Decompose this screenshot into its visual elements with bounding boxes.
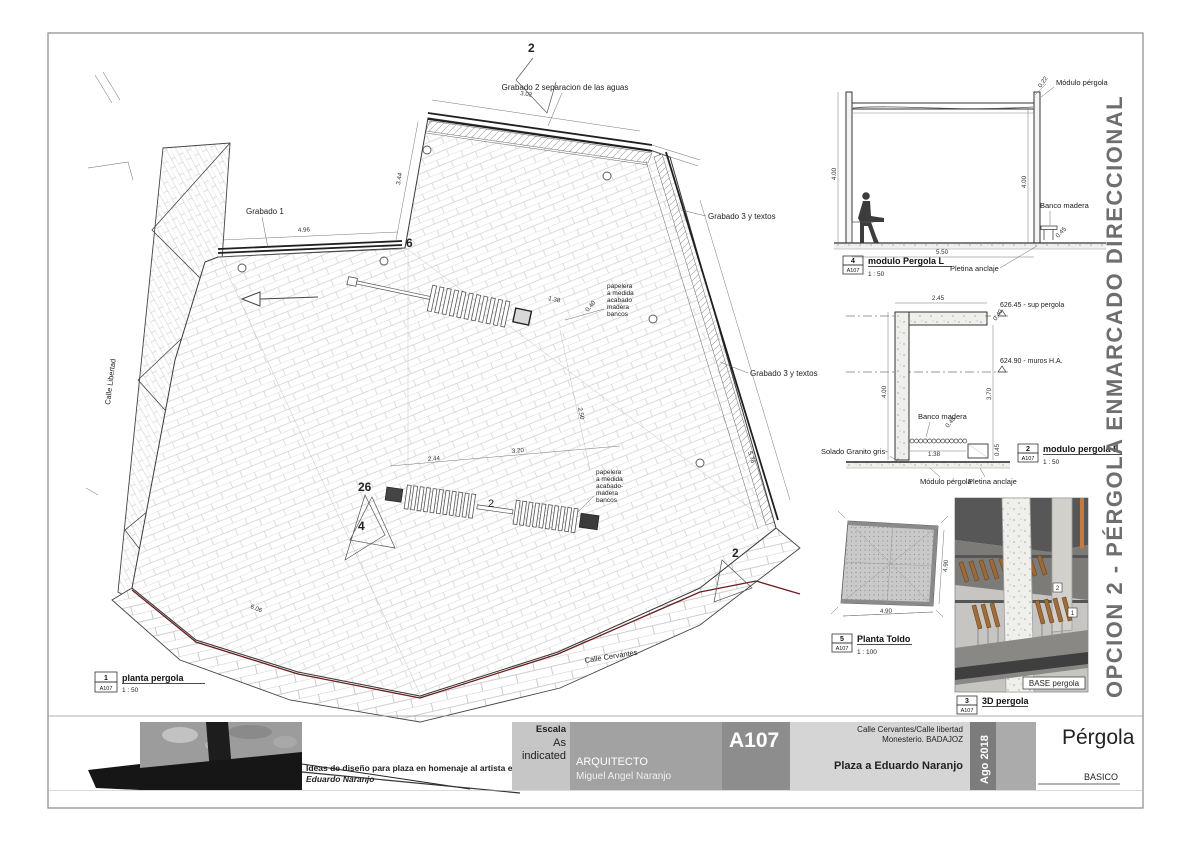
- section-modulo-pergola-l: 4.00 4.00 5.50 0.22 0.45 Módulo pérgola …: [831, 75, 1109, 278]
- callout-grabado2: Grabado 2 separacion de las aguas: [502, 83, 629, 92]
- svg-text:bancos: bancos: [607, 311, 629, 318]
- dim-label: 4.90: [942, 559, 950, 572]
- section-marker: 2: [528, 41, 535, 55]
- phase-label: BASICO: [1084, 772, 1118, 782]
- dim-label: 2.44: [428, 455, 441, 463]
- document-title: Pérgola: [1062, 726, 1135, 749]
- svg-text:2: 2: [1026, 446, 1030, 453]
- dim-label: 5.50: [936, 249, 949, 256]
- arquitecto-name: Miguel Angel Naranjo: [576, 771, 671, 782]
- callout-grabado1: Grabado 1: [246, 207, 284, 216]
- label-banco-madera: Banco madera: [1040, 201, 1090, 210]
- arquitecto-label: ARQUITECTO: [576, 756, 648, 768]
- tag-base-pergola: BASE pergola: [1029, 679, 1080, 688]
- svg-text:madera: madera: [607, 304, 629, 311]
- svg-text:A107: A107: [1022, 456, 1035, 462]
- dim-label: 3.20: [512, 447, 525, 455]
- escala-value: indicated: [522, 750, 566, 762]
- dim-label: 3.44: [395, 172, 404, 186]
- caption-line2: Eduardo Naranjo: [306, 774, 374, 784]
- svg-text:A107: A107: [100, 686, 113, 692]
- svg-text:1 : 50: 1 : 50: [122, 687, 139, 694]
- dim-label: 3.70: [986, 387, 993, 400]
- viewport-title-3d: 3 A107 3D pergola: [957, 696, 1030, 714]
- viewport-title-toldo: 5 A107 Planta Toldo 1 : 100: [832, 634, 912, 656]
- label-modulo-pergola: Módulo pérgola: [1056, 78, 1109, 87]
- svg-text:3: 3: [965, 698, 969, 705]
- svg-text:Planta Toldo: Planta Toldo: [857, 634, 911, 644]
- svg-text:1 : 100: 1 : 100: [857, 649, 877, 656]
- svg-text:acabado-: acabado-: [596, 483, 623, 490]
- svg-text:a medida: a medida: [596, 476, 623, 483]
- orange-strip: [1080, 498, 1084, 549]
- dim-label: 4.00: [1021, 175, 1028, 188]
- svg-text:1 : 50: 1 : 50: [1043, 459, 1060, 466]
- svg-text:acabado: acabado: [607, 297, 632, 304]
- dim-label: 4.90: [880, 608, 893, 615]
- drawing-sheet: 2 6 26 4 2 2 3.02 4.96 3.44 1.38 0.40 2.…: [0, 0, 1200, 841]
- label-pletina-anclaje: Pletina anclaje: [950, 264, 999, 273]
- dim-label: 0.22: [1037, 75, 1050, 89]
- level-label-sup-pergola: 626.45 - sup pergola: [1000, 302, 1064, 309]
- svg-text:modulo Pergola L: modulo Pergola L: [868, 256, 945, 266]
- label-banco-madera: Banco madera: [918, 412, 968, 421]
- dim-label: 4.96: [298, 226, 311, 234]
- svg-text:bancos: bancos: [596, 497, 618, 504]
- dim-label: 0.45: [994, 443, 1001, 456]
- svg-text:papelera: papelera: [607, 283, 633, 290]
- label-modulo-pergola: Módulo pérgola: [920, 477, 973, 486]
- dim-label: 2.45: [932, 295, 945, 302]
- svg-text:A107: A107: [836, 646, 849, 652]
- section-modulo-pergola-f: 626.45 - sup pergola 624.90 - muros H.A.…: [821, 295, 1122, 486]
- viewport-title-plan: 1 A107 planta pergola 1 : 50: [95, 672, 205, 694]
- section-marker: 4: [358, 519, 365, 533]
- viewport-title-section-l: 4 A107 modulo Pergola L 1 : 50: [843, 256, 952, 278]
- address-line1: Calle Cervantes/Calle libertad: [857, 725, 963, 734]
- dim-label: 0.40: [992, 308, 1005, 322]
- bench-slats-end-view: [910, 439, 967, 443]
- svg-text:5: 5: [840, 636, 844, 643]
- svg-text:madera: madera: [596, 490, 618, 497]
- sheet-number: A107: [729, 729, 779, 752]
- svg-text:1 : 50: 1 : 50: [868, 271, 885, 278]
- svg-text:1: 1: [104, 675, 108, 682]
- svg-text:a medida: a medida: [607, 290, 634, 297]
- svg-text:papelera: papelera: [596, 469, 622, 476]
- section-marker: 2: [732, 546, 739, 560]
- callout-grabado3: Grabado 3 y textos: [708, 212, 776, 221]
- project-name: Plaza a Eduardo Naranjo: [834, 760, 963, 772]
- svg-text:4: 4: [851, 258, 855, 265]
- street-label-calle-libertad: Calle Libertad: [103, 358, 118, 405]
- dim-label: 4.00: [881, 385, 888, 398]
- dim-label: 1.38: [928, 451, 941, 458]
- person-silhouette: [858, 192, 884, 243]
- label-solado-granito: Solado Granito gris-: [821, 447, 888, 456]
- level-label-muros: 624.90 - muros H.A.: [1000, 358, 1063, 365]
- pergola-3d-view: 2 1 BASE pergola 3 A107 3D pergola: [955, 498, 1088, 714]
- section-marker: 2: [488, 498, 494, 510]
- toldo-plan-view: 4.90 4.90 5 A107 Planta Toldo 1 : 100: [831, 511, 950, 656]
- title-block: Ideas de diseño para plaza en homenaje a…: [48, 716, 1143, 793]
- svg-text:3D pergola: 3D pergola: [982, 696, 1030, 706]
- reference-photo: [88, 722, 520, 793]
- escala-value: As: [553, 737, 566, 749]
- address-line2: Monesterio. BADAJOZ: [882, 735, 963, 744]
- section-marker: 6: [406, 236, 413, 250]
- label-pletina-anclaje: Pletina anclaje: [968, 477, 1017, 486]
- sheet-canvas: 2 6 26 4 2 2 3.02 4.96 3.44 1.38 0.40 2.…: [0, 0, 1200, 841]
- section-marker: 26: [358, 480, 372, 494]
- plan-view: 2 6 26 4 2 2 3.02 4.96 3.44 1.38 0.40 2.…: [86, 41, 933, 722]
- spare-box: [996, 722, 1036, 790]
- svg-text:A107: A107: [961, 708, 974, 714]
- sheet-side-title: OPCION 2 - PÉRGOLA ENMARCADO DIRECCIONAL: [1102, 95, 1127, 698]
- escala-label: Escala: [536, 724, 567, 735]
- svg-text:planta pergola: planta pergola: [122, 673, 185, 683]
- bench-side-view: [1041, 226, 1057, 230]
- callout-grabado3: Grabado 3 y textos: [750, 369, 818, 378]
- dim-label: 4.00: [831, 167, 838, 180]
- svg-text:A107: A107: [847, 268, 860, 274]
- sheet-date: Ago 2018: [979, 735, 991, 784]
